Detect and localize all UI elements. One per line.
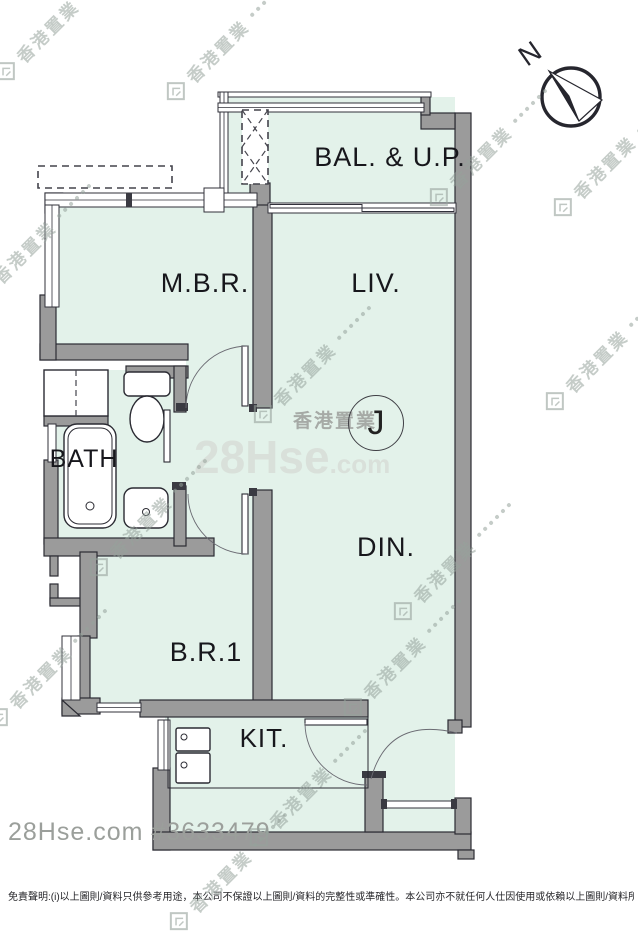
room-label-balcony: BAL. & U.P. bbox=[300, 142, 480, 173]
br1-door-leaf bbox=[242, 494, 248, 554]
room-label-mbr: M.B.R. bbox=[140, 268, 270, 299]
room-label-din: DIN. bbox=[336, 532, 436, 563]
bathtub bbox=[64, 424, 116, 528]
room-label-bath: BATH bbox=[34, 445, 134, 474]
balcony-louver bbox=[242, 110, 268, 184]
kitchen-door-leaf bbox=[305, 719, 367, 725]
kitchen-sink bbox=[176, 728, 210, 751]
unit-label-circle: J bbox=[348, 395, 404, 451]
floorplan-page: { "floorplan": { "unit_label": "J", "com… bbox=[0, 0, 638, 911]
disclaimer-text: 免責聲明:(i)以上圖則/資料只供參考用途，本公司不保證以上圖則/資料的完整性或… bbox=[8, 888, 634, 903]
toilet bbox=[124, 372, 170, 396]
unit-label: J bbox=[368, 404, 385, 443]
mbr-door-leaf bbox=[242, 346, 248, 406]
kitchen-stove bbox=[176, 753, 210, 783]
listing-reference: 28Hse.com #3633479 bbox=[8, 818, 271, 847]
room-label-kit: KIT. bbox=[214, 723, 314, 754]
bath-door-leaf bbox=[164, 410, 170, 462]
room-label-liv: LIV. bbox=[330, 268, 422, 299]
ac-platform bbox=[38, 166, 172, 188]
room-label-br1: B.R.1 bbox=[146, 637, 266, 668]
compass bbox=[542, 68, 602, 126]
